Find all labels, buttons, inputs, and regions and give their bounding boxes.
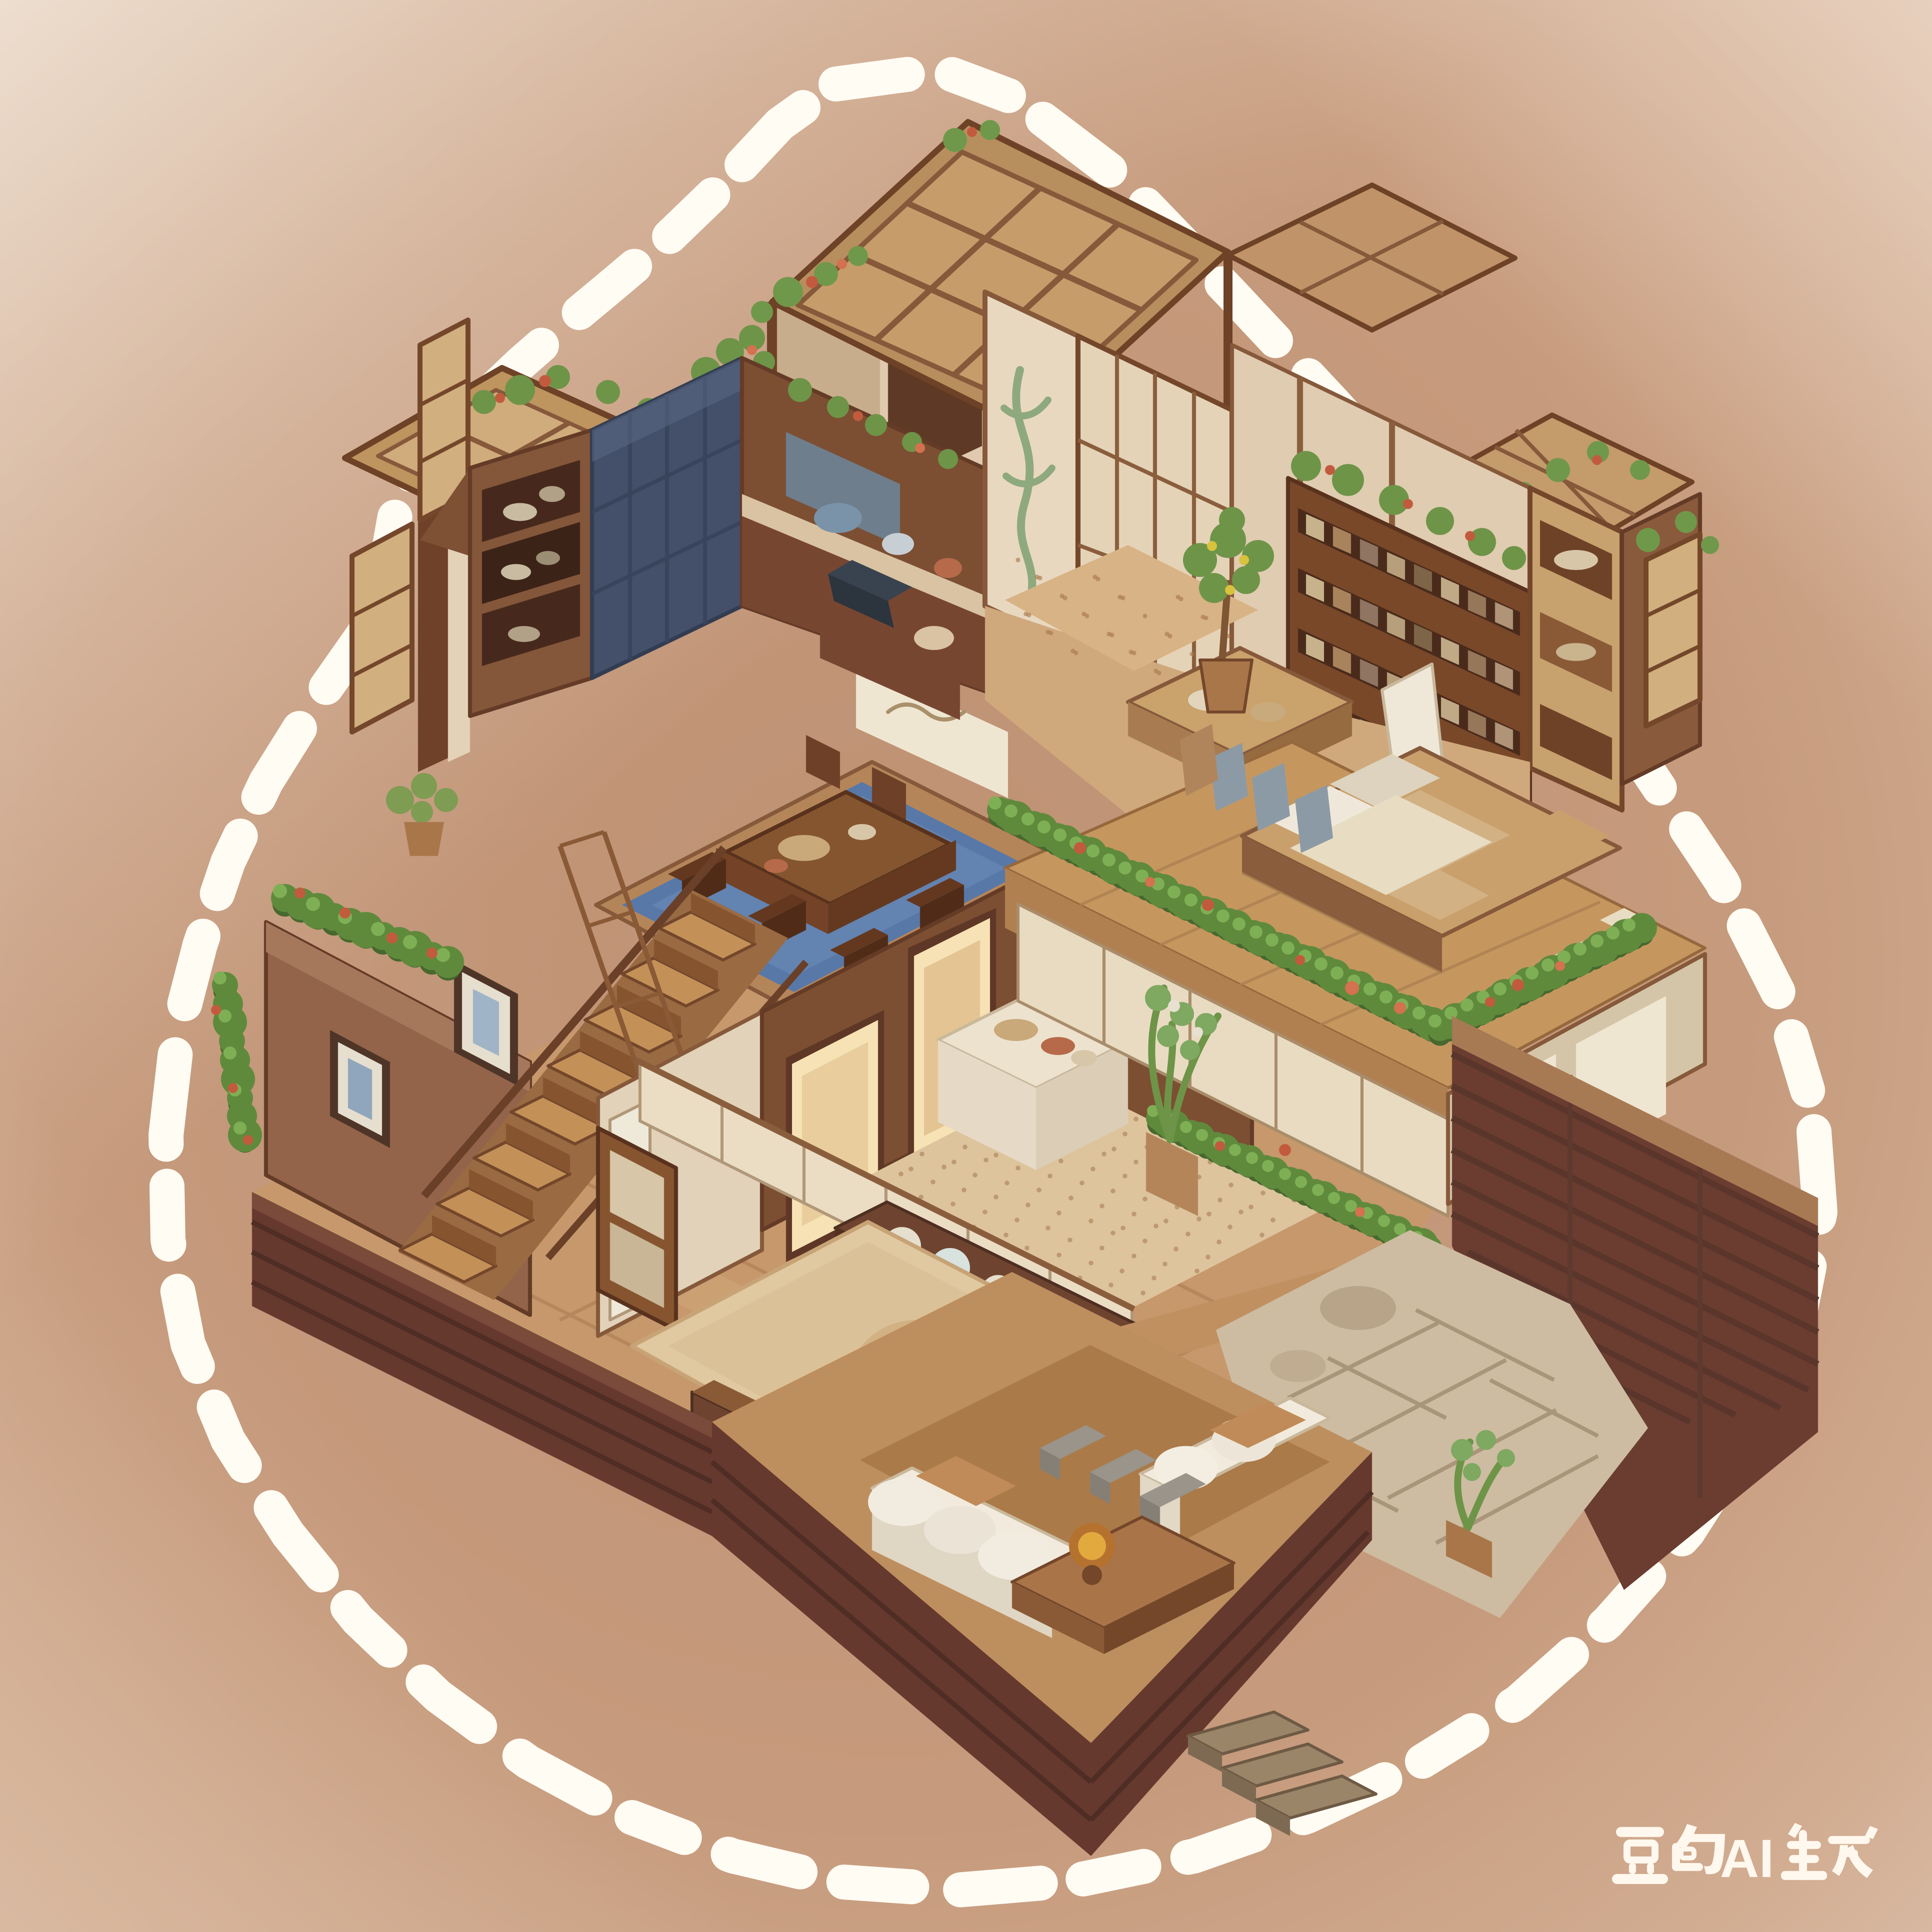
svg-text:AI: AI bbox=[1720, 1828, 1774, 1889]
